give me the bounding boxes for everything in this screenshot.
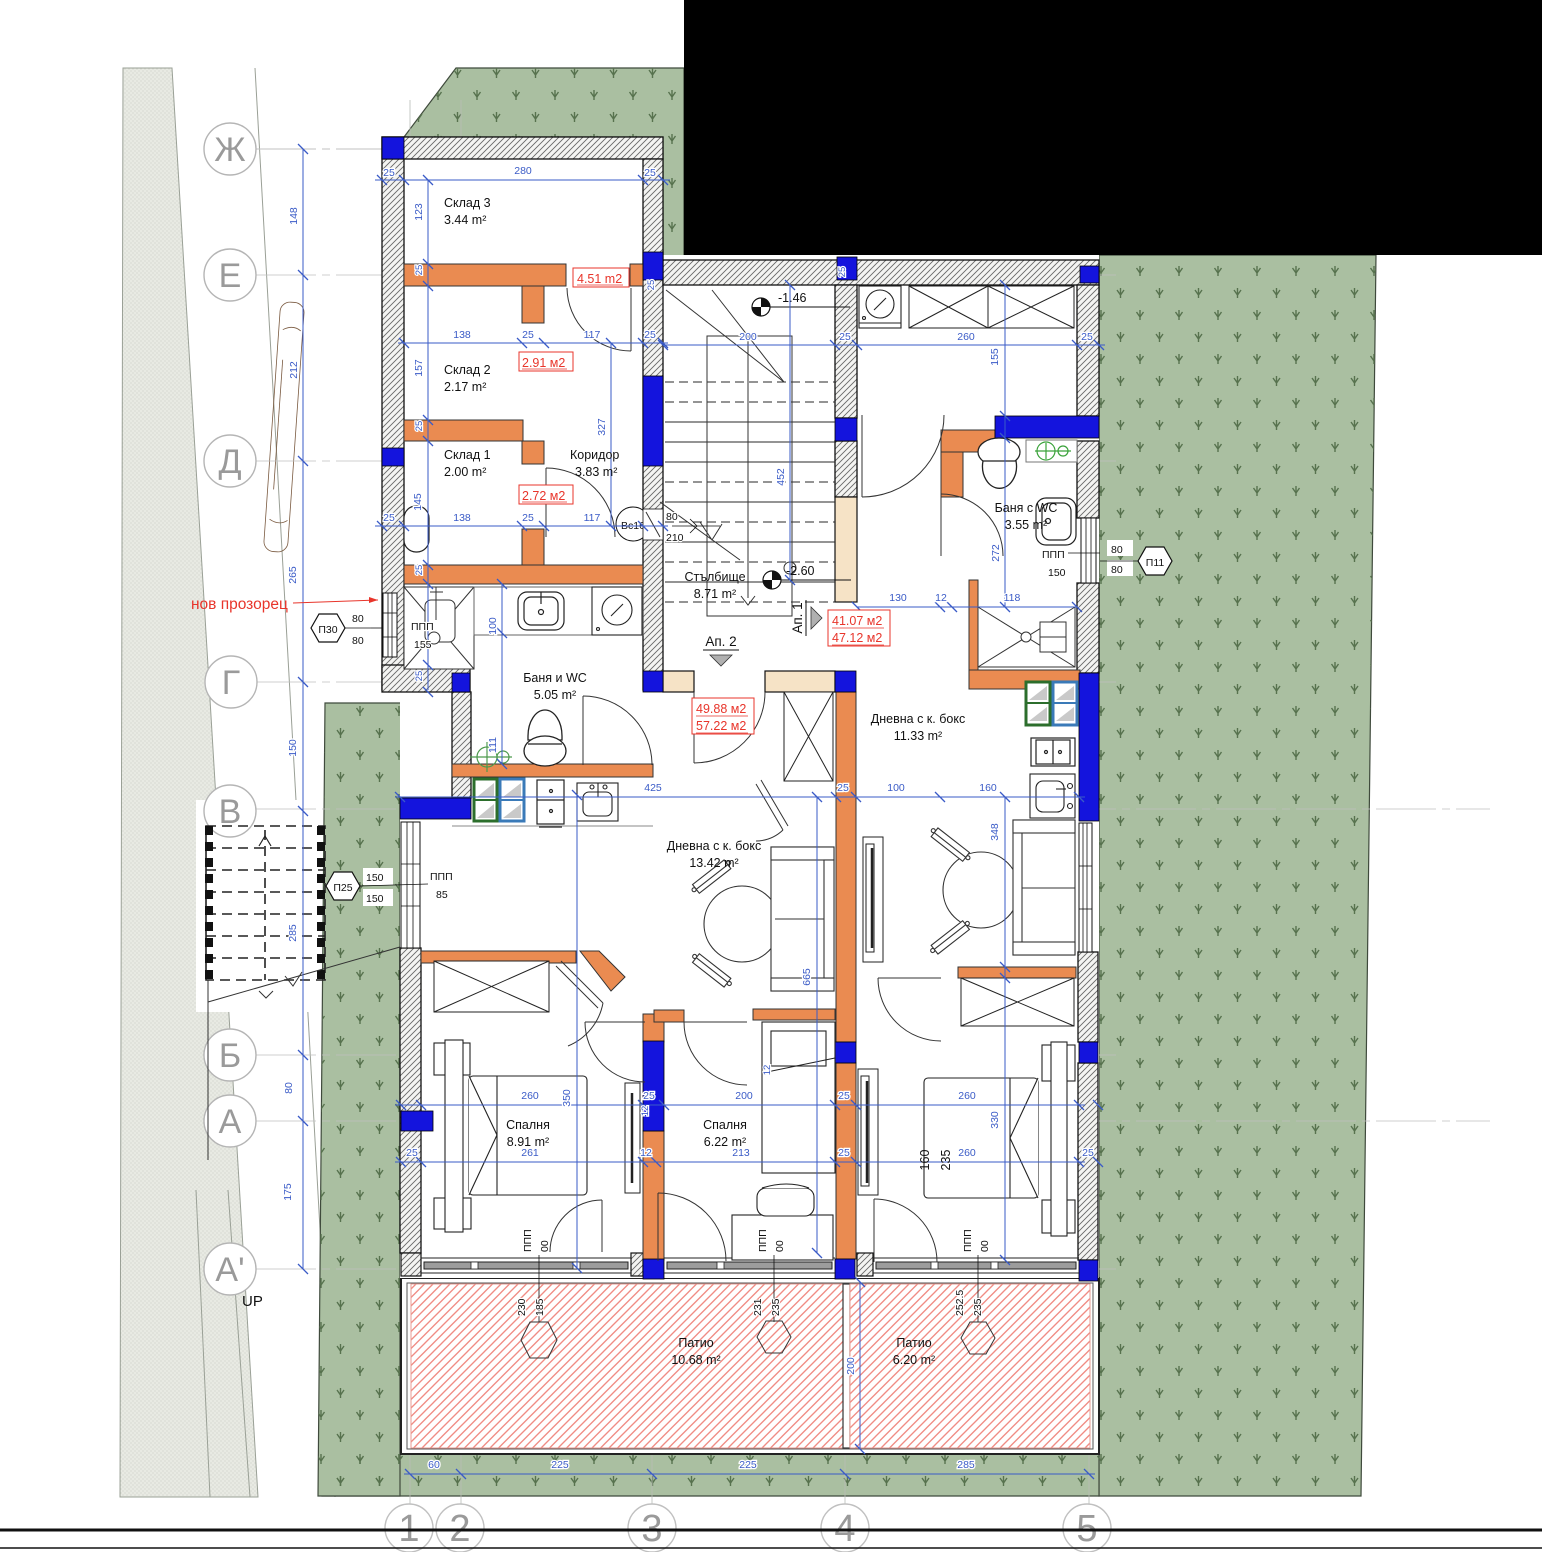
svg-text:Коридор: Коридор <box>570 448 619 462</box>
svg-text:25: 25 <box>837 267 848 278</box>
svg-text:Ап. 2: Ап. 2 <box>705 634 736 649</box>
svg-text:285: 285 <box>287 924 299 942</box>
svg-text:235: 235 <box>972 1298 984 1316</box>
svg-text:130: 130 <box>889 592 907 604</box>
svg-text:25: 25 <box>414 565 425 576</box>
svg-text:Ап. 1: Ап. 1 <box>790 602 805 633</box>
svg-text:П30: П30 <box>318 624 337 636</box>
svg-text:260: 260 <box>958 1147 976 1159</box>
svg-text:80: 80 <box>283 1082 295 1094</box>
svg-text:235: 235 <box>939 1150 953 1171</box>
svg-text:12: 12 <box>640 1106 651 1117</box>
svg-text:8.71 m²: 8.71 m² <box>694 587 736 601</box>
svg-text:160: 160 <box>979 782 997 794</box>
svg-text:ППП: ППП <box>411 621 434 633</box>
svg-text:145: 145 <box>412 493 424 511</box>
svg-text:60: 60 <box>428 1459 440 1471</box>
svg-text:285: 285 <box>957 1459 975 1471</box>
svg-text:25: 25 <box>1081 331 1093 343</box>
svg-text:185: 185 <box>534 1298 546 1316</box>
svg-text:265: 265 <box>287 566 299 584</box>
svg-text:138: 138 <box>453 329 471 341</box>
svg-text:155: 155 <box>989 348 1001 366</box>
svg-text:12: 12 <box>762 1065 773 1076</box>
svg-text:ППП: ППП <box>757 1229 769 1252</box>
svg-text:-1.46: -1.46 <box>778 291 807 305</box>
svg-text:118: 118 <box>1004 592 1021 604</box>
svg-text:138: 138 <box>453 512 471 524</box>
svg-text:2.17 m²: 2.17 m² <box>444 380 486 394</box>
svg-text:25: 25 <box>414 421 425 432</box>
svg-text:Патио: Патио <box>678 1336 713 1350</box>
svg-text:ППП: ППП <box>522 1229 534 1252</box>
svg-text:25: 25 <box>838 1090 850 1102</box>
svg-text:Склад 3: Склад 3 <box>444 196 491 210</box>
svg-text:25: 25 <box>643 1090 655 1102</box>
svg-text:280: 280 <box>514 165 532 177</box>
svg-text:2.91 м2: 2.91 м2 <box>522 356 565 370</box>
svg-text:25: 25 <box>644 167 656 179</box>
svg-text:225: 225 <box>551 1459 569 1471</box>
svg-text:85: 85 <box>436 889 448 901</box>
svg-text:UP: UP <box>242 1293 263 1310</box>
svg-text:6.20 m²: 6.20 m² <box>893 1353 935 1367</box>
svg-text:41.07 м2: 41.07 м2 <box>832 614 882 628</box>
svg-text:210: 210 <box>666 532 684 544</box>
svg-text:175: 175 <box>282 1183 294 1201</box>
svg-text:Баня и WC: Баня и WC <box>523 671 587 685</box>
svg-text:272: 272 <box>990 544 1002 562</box>
svg-text:260: 260 <box>521 1090 539 1102</box>
svg-text:12: 12 <box>640 1147 652 1159</box>
svg-text:Спалня: Спалня <box>506 1118 550 1132</box>
svg-text:Дневна с к. бокс: Дневна с к. бокс <box>667 839 761 853</box>
svg-text:150: 150 <box>287 739 299 757</box>
svg-text:А: А <box>219 1103 242 1141</box>
svg-text:350: 350 <box>561 1089 573 1107</box>
svg-text:330: 330 <box>989 1111 1001 1129</box>
svg-text:4.51 m2: 4.51 m2 <box>577 272 622 286</box>
svg-text:117: 117 <box>584 512 601 524</box>
svg-text:157: 157 <box>413 359 425 377</box>
svg-text:80: 80 <box>1111 544 1123 556</box>
svg-text:ППП: ППП <box>430 871 453 883</box>
svg-text:13.42 m²: 13.42 m² <box>689 856 738 870</box>
svg-text:6.22 m²: 6.22 m² <box>704 1135 746 1149</box>
svg-text:Дневна с к. бокс: Дневна с к. бокс <box>871 712 965 726</box>
svg-text:80: 80 <box>352 613 364 625</box>
svg-text:25: 25 <box>838 1147 850 1159</box>
svg-text:25: 25 <box>414 671 425 682</box>
svg-text:160: 160 <box>918 1150 932 1171</box>
svg-text:10.68 m²: 10.68 m² <box>671 1353 720 1367</box>
svg-text:25: 25 <box>839 331 851 343</box>
svg-text:150: 150 <box>1048 567 1066 579</box>
svg-text:150: 150 <box>366 872 384 884</box>
svg-text:25: 25 <box>406 1147 418 1159</box>
svg-text:25: 25 <box>522 329 534 341</box>
svg-text:П11: П11 <box>1146 557 1165 569</box>
svg-text:117: 117 <box>584 329 601 341</box>
svg-text:Д: Д <box>218 443 241 481</box>
svg-text:8.91 m²: 8.91 m² <box>507 1135 549 1149</box>
svg-text:11.33 m²: 11.33 m² <box>894 729 942 743</box>
svg-text:25: 25 <box>383 512 395 524</box>
svg-text:Стълбище: Стълбище <box>684 570 745 584</box>
svg-text:00: 00 <box>774 1240 786 1252</box>
svg-text:Склад 2: Склад 2 <box>444 363 491 377</box>
svg-text:Патио: Патио <box>896 1336 931 1350</box>
svg-text:Спалня: Спалня <box>703 1118 747 1132</box>
svg-text:212: 212 <box>288 361 300 379</box>
svg-text:А': А' <box>215 1251 244 1289</box>
svg-text:12: 12 <box>935 592 947 604</box>
svg-text:148: 148 <box>288 207 300 225</box>
svg-text:3.83 m²: 3.83 m² <box>575 465 617 479</box>
svg-text:452: 452 <box>775 468 787 486</box>
svg-text:00: 00 <box>979 1240 991 1252</box>
svg-text:231: 231 <box>752 1298 764 1316</box>
svg-text:80: 80 <box>1111 564 1123 576</box>
svg-text:260: 260 <box>958 1090 976 1102</box>
svg-text:200: 200 <box>845 1357 857 1375</box>
svg-text:нов прозорец: нов прозорец <box>191 596 288 613</box>
svg-text:25: 25 <box>646 280 657 291</box>
svg-text:49.88 м2: 49.88 м2 <box>696 702 746 716</box>
svg-text:25: 25 <box>1082 1147 1094 1159</box>
svg-text:25: 25 <box>837 782 849 794</box>
svg-text:327: 327 <box>596 418 608 436</box>
svg-text:3.55 m²: 3.55 m² <box>1005 518 1047 532</box>
svg-text:111: 111 <box>487 737 499 753</box>
svg-text:80: 80 <box>352 635 364 647</box>
svg-text:ППП: ППП <box>962 1229 974 1252</box>
svg-text:Б: Б <box>219 1037 241 1075</box>
svg-text:2.72 м2: 2.72 м2 <box>522 489 565 503</box>
svg-text:100: 100 <box>487 617 499 635</box>
svg-text:230: 230 <box>516 1298 528 1316</box>
svg-text:123: 123 <box>413 203 425 221</box>
svg-text:155: 155 <box>414 639 432 651</box>
svg-text:348: 348 <box>989 823 1001 841</box>
svg-text:100: 100 <box>887 782 905 794</box>
svg-text:3.44 m²: 3.44 m² <box>444 213 486 227</box>
svg-text:25: 25 <box>644 329 656 341</box>
svg-text:Г: Г <box>222 664 240 702</box>
svg-text:425: 425 <box>644 782 662 794</box>
svg-text:57.22 м2: 57.22 м2 <box>696 719 746 733</box>
svg-text:25: 25 <box>522 512 534 524</box>
svg-text:Ж: Ж <box>214 131 245 169</box>
svg-text:225: 225 <box>739 1459 757 1471</box>
svg-text:25: 25 <box>414 265 425 276</box>
svg-text:80: 80 <box>666 511 678 523</box>
svg-text:252.5: 252.5 <box>954 1290 966 1316</box>
svg-text:235: 235 <box>770 1298 782 1316</box>
svg-text:200: 200 <box>735 1090 753 1102</box>
svg-text:665: 665 <box>801 968 813 986</box>
svg-text:00: 00 <box>539 1240 551 1252</box>
svg-text:200: 200 <box>739 331 757 343</box>
svg-text:Склад 1: Склад 1 <box>444 448 491 462</box>
svg-text:5.05 m²: 5.05 m² <box>534 688 576 702</box>
svg-text:Баня с WC: Баня с WC <box>995 501 1058 515</box>
svg-text:47.12 м2: 47.12 м2 <box>832 631 882 645</box>
svg-text:Е: Е <box>219 257 242 295</box>
svg-text:2.00 m²: 2.00 m² <box>444 465 486 479</box>
svg-text:25: 25 <box>383 167 395 179</box>
svg-text:150: 150 <box>366 893 384 905</box>
svg-text:260: 260 <box>957 331 975 343</box>
svg-text:ППП: ППП <box>1042 549 1065 561</box>
svg-text:П25: П25 <box>333 882 352 894</box>
